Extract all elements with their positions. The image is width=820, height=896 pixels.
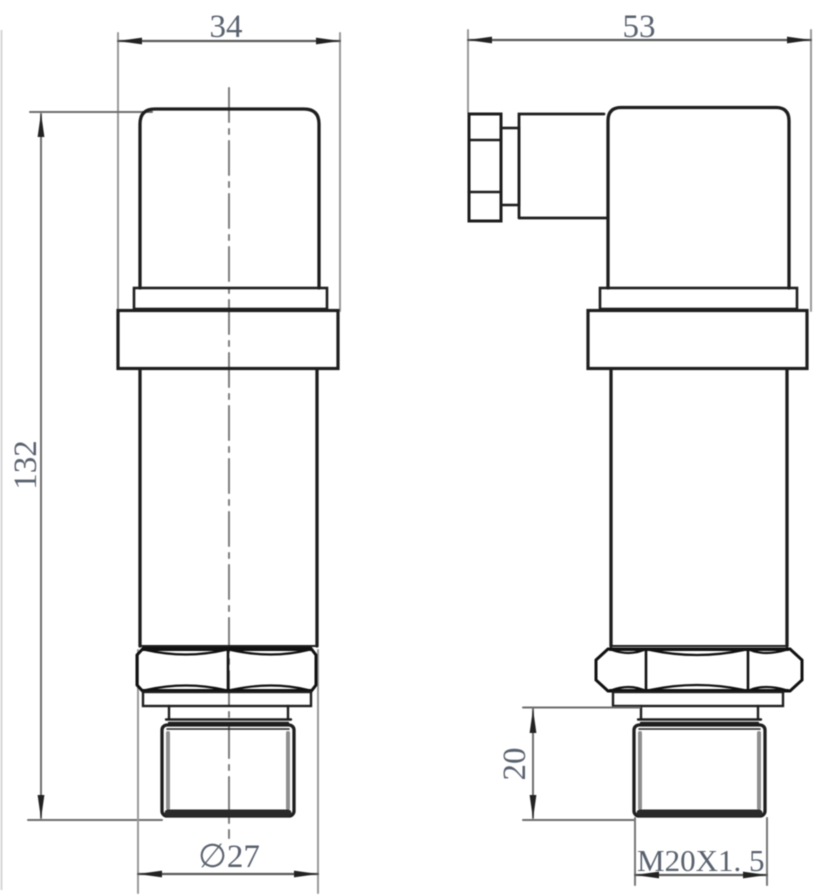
- svg-text:132: 132: [8, 440, 44, 490]
- svg-text:∅27: ∅27: [198, 839, 260, 875]
- svg-text:20: 20: [497, 748, 533, 781]
- svg-text:34: 34: [210, 9, 243, 45]
- svg-text:M20X1. 5: M20X1. 5: [637, 843, 764, 878]
- svg-text:53: 53: [623, 9, 656, 45]
